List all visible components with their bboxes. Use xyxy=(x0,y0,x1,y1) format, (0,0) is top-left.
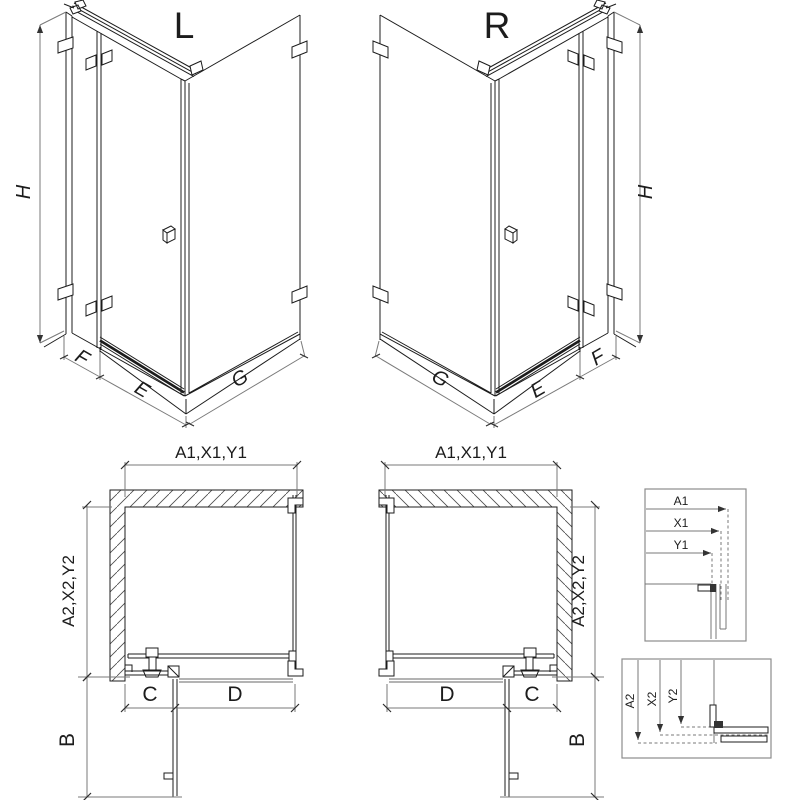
plan-left-opening-label: D xyxy=(227,683,242,706)
dim-label-fixed-right: F xyxy=(587,344,610,370)
detail-box-width: A1 X1 Y1 xyxy=(645,489,746,641)
plan-right-opening-label: D xyxy=(439,683,454,706)
plan-view-left: A1,X1,Y1 A2,X2,Y2 C D B xyxy=(56,443,303,800)
dim-label-door-right: E xyxy=(527,377,550,403)
plan-right-projection-label: B xyxy=(566,733,589,747)
detail-y2-label: Y2 xyxy=(666,688,680,703)
variant-right-label: R xyxy=(484,5,511,46)
plan-view-right: A1,X1,Y1 A2,X2,Y2 C D B xyxy=(379,443,604,800)
dim-label-height-right: H xyxy=(635,184,657,199)
plan-right-width-label: A1,X1,Y1 xyxy=(435,443,507,462)
detail-a1-label: A1 xyxy=(674,494,689,508)
plan-left-fixed-label: C xyxy=(142,683,157,706)
detail-y1-label: Y1 xyxy=(674,538,689,552)
dim-label-height-left: H xyxy=(13,184,35,199)
plan-left-projection-label: B xyxy=(56,733,79,747)
plan-left-geometry xyxy=(78,461,303,800)
plan-left-depth-label: A2,X2,Y2 xyxy=(59,555,78,627)
detail-a2-label: A2 xyxy=(623,693,637,708)
plan-right-depth-label: A2,X2,Y2 xyxy=(569,555,588,627)
plan-right-fixed-label: C xyxy=(524,683,539,706)
iso-view-right: R H F E G xyxy=(372,0,657,428)
plan-left-width-label: A1,X1,Y1 xyxy=(175,443,247,462)
dim-label-door-left: E xyxy=(131,377,154,403)
dim-label-fixed-left: F xyxy=(71,345,94,371)
plan-right-geometry xyxy=(379,461,604,800)
detail-x1-label: X1 xyxy=(674,516,689,530)
detail-x2-label: X2 xyxy=(645,691,659,706)
iso-view-left: L H F E G xyxy=(13,0,308,428)
detail-width-frame xyxy=(645,489,746,641)
variant-left-label: L xyxy=(174,5,195,46)
detail-box-depth: A2 X2 Y2 xyxy=(622,659,771,758)
technical-drawing-canvas: L H F E G R H F E G A1,X1,Y1 A2,X2,Y2 C … xyxy=(0,0,800,800)
